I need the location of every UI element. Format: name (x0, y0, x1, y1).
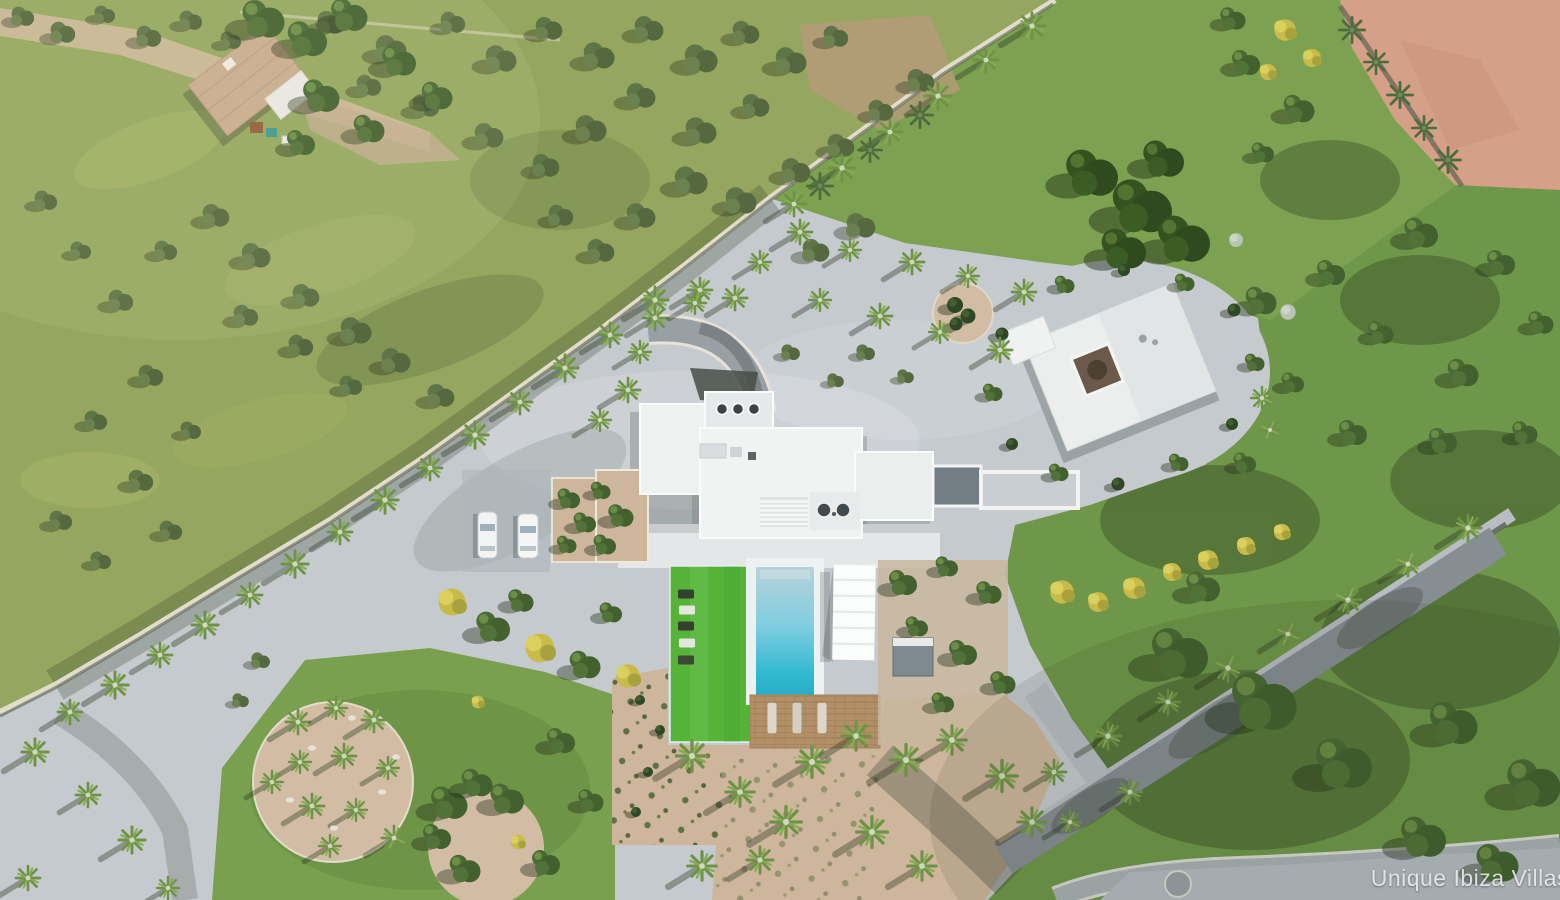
car (513, 514, 538, 558)
aerial-photo: Unique Ibiza Villas (0, 0, 1560, 900)
scene-svg (0, 0, 1560, 900)
car (473, 512, 497, 558)
watermark-text: Unique Ibiza Villas (1371, 865, 1560, 892)
pool (756, 567, 814, 699)
